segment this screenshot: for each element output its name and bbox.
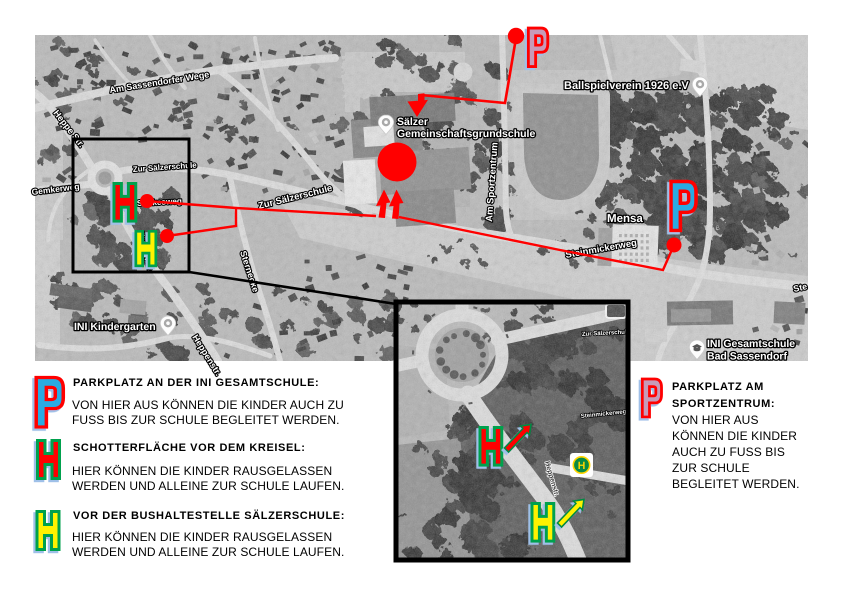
svg-text:Sälzer: Sälzer [397,116,428,128]
svg-text:Gemeinschaftsgrundschule: Gemeinschaftsgrundschule [397,128,535,140]
svg-text:Bad Sassendorf: Bad Sassendorf [707,351,787,363]
svg-text:Ballspielverein 1926 e.V: Ballspielverein 1926 e.V [564,80,689,92]
svg-text:H: H [578,460,586,472]
svg-text:Mensa: Mensa [607,213,643,225]
svg-text:INI Kindergarten: INI Kindergarten [74,321,156,333]
svg-text:INI Gesamtschule: INI Gesamtschule [707,338,795,350]
